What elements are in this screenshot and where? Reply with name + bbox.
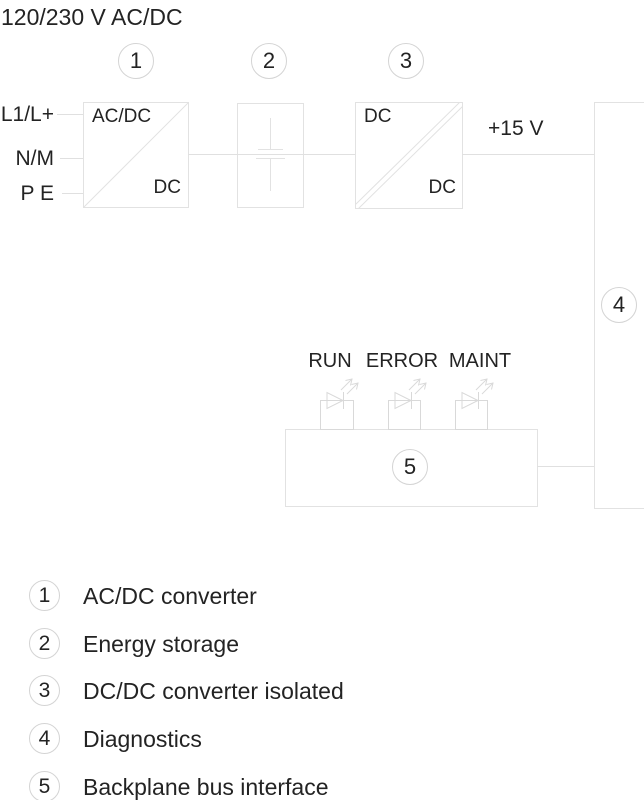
led-error-stem [389,401,421,430]
led-run-stem [321,401,354,430]
input-label-pe: P E [0,181,54,206]
led-error-icon [395,379,426,409]
input-label-l1: L1/L+ [0,102,54,127]
diagram-title: 120/230 V AC/DC [1,4,183,31]
callout-5-badge: 5 [392,449,428,485]
callout-3-number: 3 [400,48,412,74]
legend-5-number: 5 [39,775,51,799]
callout-2-badge: 2 [251,43,287,79]
legend-4-label: Diagnostics [83,724,202,754]
led-maint-stem [456,401,488,430]
legend-2-label: Energy storage [83,629,239,659]
legend-5-badge: 5 [29,771,60,800]
legend-4-badge: 4 [29,723,60,754]
callout-1-number: 1 [130,48,142,74]
legend-3-badge: 3 [29,675,60,706]
led-label-error: ERROR [360,350,444,372]
dcdc-block-label-top: DC [364,106,391,128]
dcdc-block-label-bottom: DC [414,177,456,199]
legend-2-badge: 2 [29,628,60,659]
callout-5-number: 5 [404,454,416,480]
legend-1-number: 1 [39,584,51,608]
callout-3-badge: 3 [388,43,424,79]
callout-4-badge: 4 [601,287,637,323]
legend-1-label: AC/DC converter [83,581,257,611]
legend-1-badge: 1 [29,580,60,611]
callout-1-badge: 1 [118,43,154,79]
legend-2-number: 2 [39,632,51,656]
legend-5-label: Backplane bus interface [83,772,329,800]
led-maint-icon [462,379,493,409]
acdc-block-label-top: AC/DC [92,106,151,128]
callout-2-number: 2 [263,48,275,74]
callout-4-number: 4 [613,292,625,318]
input-label-n: N/M [0,146,54,171]
led-label-maint: MAINT [438,350,522,372]
block-diagram: 120/230 V AC/DC L1/L+ N/M P E AC/DC DC D… [0,0,644,800]
legend-3-label: DC/DC converter isolated [83,676,344,706]
acdc-block-label-bottom: DC [139,177,181,199]
legend-4-number: 4 [39,727,51,751]
legend-3-number: 3 [39,679,51,703]
output-voltage-label: +15 V [488,117,543,141]
